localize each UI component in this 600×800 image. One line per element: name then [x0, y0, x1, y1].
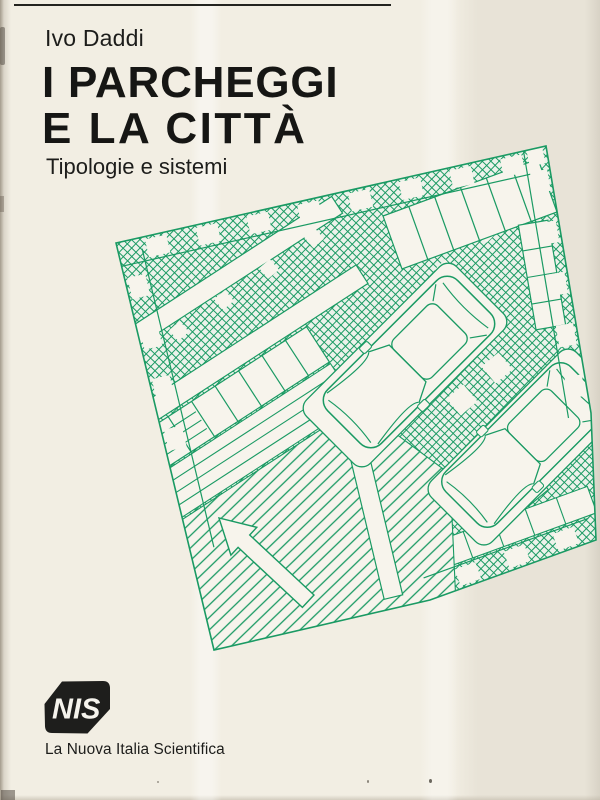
svg-text:NIS: NIS [52, 694, 101, 726]
